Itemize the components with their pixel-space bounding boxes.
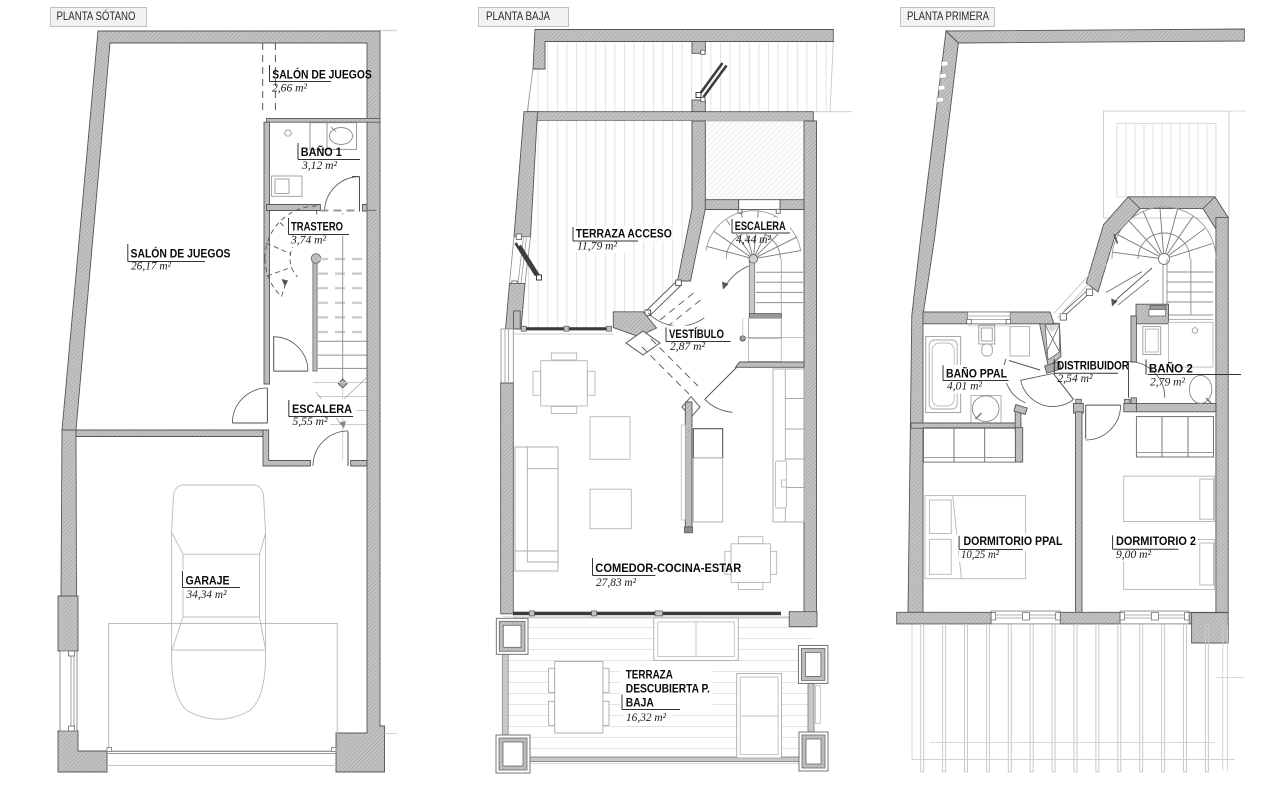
svg-text:DESCUBIERTA P.: DESCUBIERTA P. [626,682,710,696]
svg-text:9,00 m²: 9,00 m² [1116,549,1152,561]
svg-text:2,87 m²: 2,87 m² [670,341,706,353]
svg-text:BAÑO 1: BAÑO 1 [301,144,342,159]
svg-text:TERRAZA ACCESO: TERRAZA ACCESO [576,227,672,241]
svg-text:DISTRIBUIDOR: DISTRIBUIDOR [1057,359,1129,373]
svg-text:26,17 m²: 26,17 m² [131,261,172,273]
svg-text:2,66 m²: 2,66 m² [272,83,308,95]
svg-text:2,79 m²: 2,79 m² [1150,377,1186,389]
svg-text:DORMITORIO 2: DORMITORIO 2 [1116,534,1196,548]
svg-text:DORMITORIO PPAL: DORMITORIO PPAL [964,534,1063,548]
svg-text:TERRAZA: TERRAZA [626,668,673,682]
svg-text:3,74 m²: 3,74 m² [290,235,327,247]
svg-text:BAJA: BAJA [626,696,654,710]
svg-text:34,34 m²: 34,34 m² [186,589,228,601]
svg-text:ESCALERA: ESCALERA [735,219,786,233]
svg-text:PLANTA PRIMERA: PLANTA PRIMERA [907,11,989,23]
svg-text:4,01 m²: 4,01 m² [947,381,983,393]
svg-text:11,79 m²: 11,79 m² [577,241,618,253]
svg-text:10,25 m²: 10,25 m² [961,549,1000,561]
svg-text:2,54 m²: 2,54 m² [1058,373,1094,385]
svg-text:3,12 m²: 3,12 m² [301,160,338,172]
svg-text:GARAJE: GARAJE [186,574,230,588]
svg-text:TRASTERO: TRASTERO [291,220,343,234]
svg-text:SALÓN DE JUEGOS: SALÓN DE JUEGOS [131,246,231,261]
svg-text:PLANTA BAJA: PLANTA BAJA [486,11,550,23]
svg-text:PLANTA SÓTANO: PLANTA SÓTANO [57,10,136,23]
svg-text:COMEDOR-COCINA-ESTAR: COMEDOR-COCINA-ESTAR [595,561,741,575]
svg-text:27,83 m²: 27,83 m² [596,577,637,589]
svg-text:SALÓN DE JUEGOS: SALÓN DE JUEGOS [272,67,372,82]
svg-text:4,44 m²: 4,44 m² [736,234,772,246]
svg-text:VESTÍBULO: VESTÍBULO [669,326,724,341]
svg-text:16,32 m²: 16,32 m² [626,712,667,724]
svg-text:BAÑO PPAL: BAÑO PPAL [946,366,1007,381]
svg-text:5,55 m²: 5,55 m² [293,416,329,428]
svg-text:ESCALERA: ESCALERA [292,402,352,416]
svg-text:BAÑO 2: BAÑO 2 [1149,361,1193,376]
